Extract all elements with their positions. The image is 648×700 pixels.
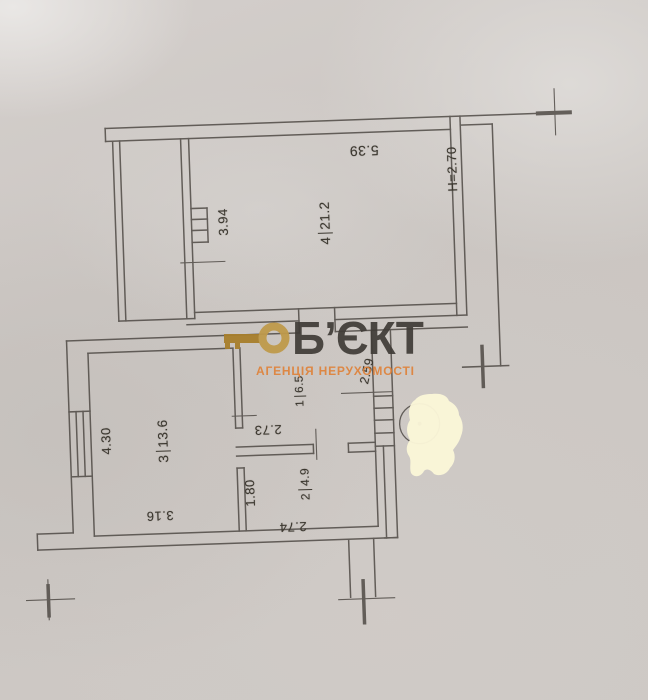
dimension-room2-width: 2.74 [279, 519, 307, 535]
room3-walls [67, 335, 240, 537]
dimension-tick-bottom-center [337, 538, 396, 624]
dimension-line-259 [342, 392, 393, 394]
dimension-tick-balcony [482, 346, 483, 386]
hall-bath-wall [236, 442, 375, 456]
dimension-tick-top-right [537, 88, 571, 135]
room-2-area: 4.9 [297, 468, 312, 487]
shaft-walls [113, 139, 195, 322]
key-icon [224, 320, 290, 356]
window-symbol-room3 [69, 411, 92, 477]
room-4-area: 21.2 [317, 201, 333, 230]
dimension-shaft-side: 3.94 [215, 208, 231, 236]
dimension-tick-273 [316, 429, 317, 459]
room-3-number: 3 [156, 450, 171, 463]
redaction-blob [407, 394, 463, 476]
vent-hatch-symbol [374, 396, 395, 447]
balcony-walls [454, 124, 508, 367]
room-4-number: 4 [318, 232, 333, 245]
dimension-ceiling-height: H=2.70 [444, 146, 461, 192]
watermark-brand-text: Б’ЄКТ [292, 320, 423, 357]
scanned-floor-plan-page: 5.39 H=2.70 3.94 4.30 3.16 2.73 1.80 2.7… [0, 0, 648, 700]
agency-watermark: Б’ЄКТ АГЕНЦІЯ НЕРУХОМОСТІ [224, 320, 454, 382]
dimension-room3-width: 3.16 [146, 508, 174, 524]
dimension-room4-width: 5.39 [349, 142, 379, 159]
dimension-tick-bottom-left [26, 579, 75, 621]
window-symbol-shaft [191, 208, 208, 243]
dimension-room3-depth: 4.30 [98, 427, 114, 455]
room-2-number: 2 [298, 489, 312, 501]
room-3-area: 13.6 [155, 419, 171, 448]
room-1-number: 1 [294, 396, 306, 407]
top-wall [105, 113, 562, 142]
dimension-hall-width: 2.73 [254, 422, 282, 438]
bottom-wall [37, 522, 397, 551]
dimension-room2-depth: 1.80 [242, 479, 258, 507]
room-4-label: 4 21.2 [317, 201, 334, 245]
dimension-tick-shaft [181, 261, 225, 263]
room-3-label: 3 13.6 [155, 419, 172, 463]
watermark-subtitle: АГЕНЦІЯ НЕРУХОМОСТІ [256, 364, 415, 378]
room-2-label: 2 4.9 [297, 468, 312, 501]
